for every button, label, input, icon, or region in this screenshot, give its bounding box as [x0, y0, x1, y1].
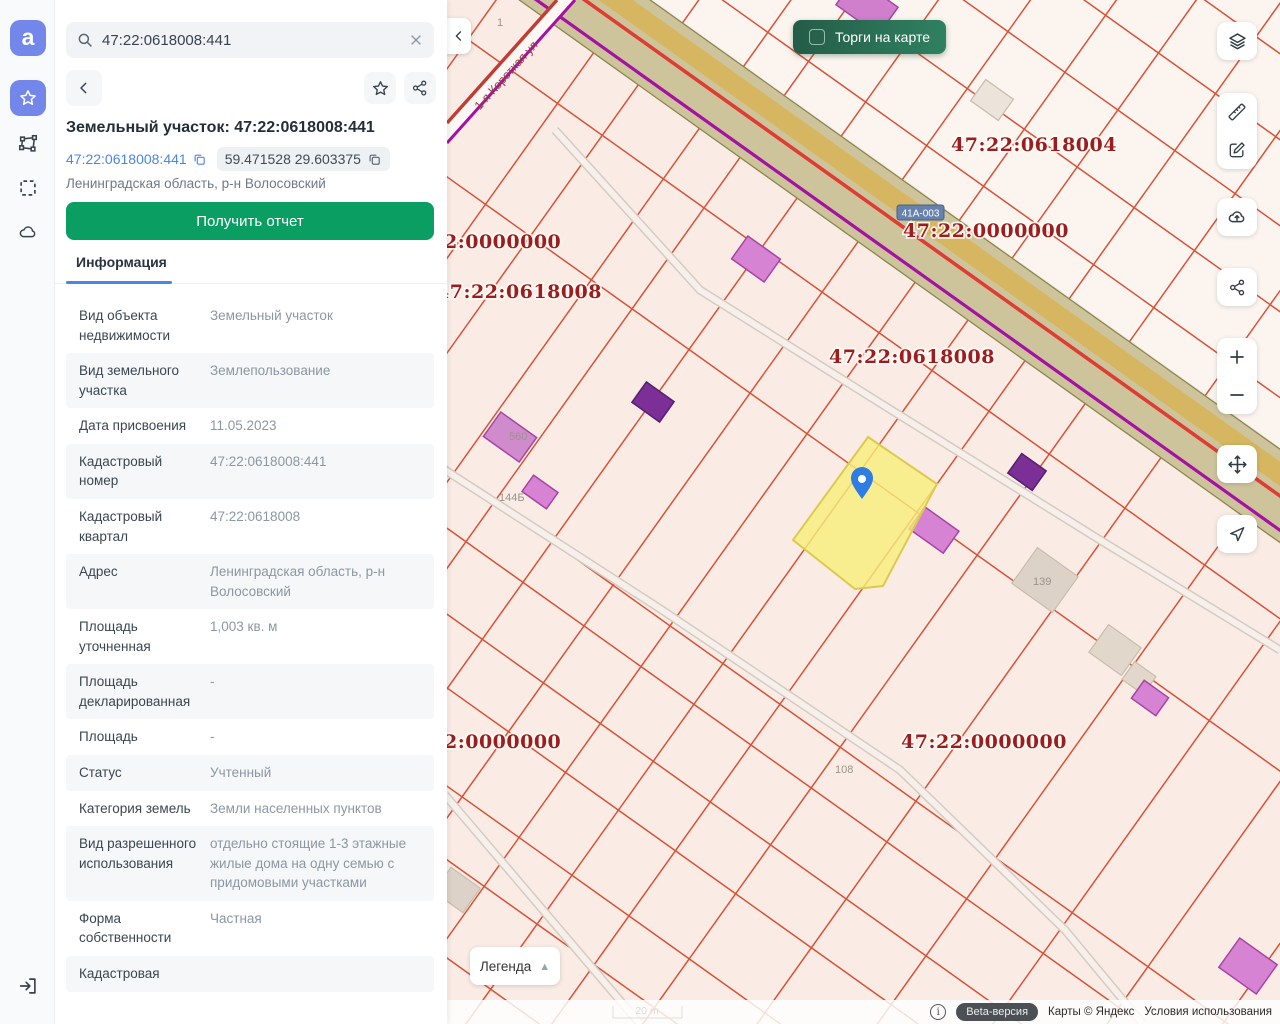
map-canvas[interactable]: 41А-003 47:22:0618004 47:22:0000000 2:00… [447, 0, 1280, 1024]
building-pink [522, 475, 558, 509]
sidebar-rail: a [0, 0, 55, 1024]
cloud-icon [17, 221, 39, 243]
row-value [210, 964, 421, 984]
upload-control [1217, 198, 1257, 236]
coordinates-chip[interactable]: 59.471528 29.603375 [217, 147, 390, 171]
legend-button[interactable]: Легенда ▲ [470, 947, 560, 985]
search-icon [76, 31, 94, 49]
row-label: Дата присвоения [79, 416, 210, 436]
tab-active-underline [66, 281, 172, 284]
maps-copyright[interactable]: Карты © Яндекс [1048, 1006, 1134, 1018]
row-label: Площадь декларированная [79, 672, 210, 711]
table-row: Вид разрешенного использованияотдельно с… [66, 826, 434, 901]
table-row: Вид объекта недвижимостиЗемельный участо… [66, 298, 434, 353]
row-label: Кадастровый номер [79, 452, 210, 491]
row-label: Кадастровый квартал [79, 507, 210, 546]
row-value: Учтенный [210, 763, 421, 783]
search-box [66, 22, 434, 58]
parcel-number-label: 139 [1033, 576, 1051, 588]
copy-icon[interactable] [367, 152, 382, 167]
copy-icon[interactable] [192, 152, 207, 167]
legend-label: Легенда [480, 959, 531, 974]
map-base-layer: 41А-003 47:22:0618004 47:22:0000000 2:00… [447, 0, 1280, 1024]
table-row: Площадь декларированная- [66, 664, 434, 719]
plus-icon [1228, 348, 1246, 366]
exit-icon [17, 975, 39, 997]
row-value: - [210, 672, 421, 711]
share-icon [411, 79, 429, 97]
get-report-button[interactable]: Получить отчет [66, 202, 434, 240]
table-row: СтатусУчтенный [66, 755, 434, 791]
table-row: Вид земельного участкаЗемлепользование [66, 353, 434, 408]
chevron-left-icon [452, 29, 466, 43]
identifier-row: 47:22:0618008:441 59.471528 29.603375 [66, 146, 436, 172]
kv-label: 47:22:0618008 [829, 346, 995, 368]
star-outline-icon [371, 79, 390, 98]
minus-icon [1228, 386, 1246, 404]
kv-label: 2:0000000 [447, 731, 561, 753]
search-input[interactable] [102, 32, 400, 49]
edit-icon [1227, 140, 1247, 160]
row-value: Ленинградская область, р-н Волосовский [210, 562, 421, 601]
row-label: Вид объекта недвижимости [79, 306, 210, 345]
my-location-button[interactable] [1217, 515, 1257, 553]
dashed-square-icon [17, 177, 39, 199]
chevron-up-icon: ▲ [539, 961, 550, 973]
table-row: Дата присвоения11.05.2023 [66, 408, 434, 444]
pan-button[interactable] [1217, 445, 1257, 483]
app-root: a [0, 0, 1280, 1024]
parcel-number-label: 144Б [499, 492, 525, 504]
zoom-control [1217, 338, 1257, 414]
beta-badge: Beta-версия [956, 1003, 1038, 1021]
table-row: Кадастровый номер47:22:0618008:441 [66, 444, 434, 499]
layers-icon [1227, 31, 1248, 52]
sidebar-item-favorites[interactable] [10, 80, 46, 116]
road-badge-text: 41А-003 [902, 209, 940, 220]
page-title: Земельный участок: 47:22:0618008:441 [66, 119, 436, 137]
share-control [1217, 268, 1257, 306]
edit-button[interactable] [1217, 131, 1257, 169]
move-icon [1227, 454, 1248, 475]
location-arrow-icon [1227, 524, 1247, 544]
favorite-button[interactable] [364, 72, 396, 104]
back-button[interactable] [66, 70, 102, 106]
ruler-button[interactable] [1217, 93, 1257, 131]
coordinates-text: 59.471528 29.603375 [225, 151, 361, 167]
info-icon[interactable]: i [930, 1004, 946, 1020]
sidebar-item-area-select[interactable] [10, 170, 46, 206]
sidebar-item-exit[interactable] [10, 968, 46, 1004]
zoom-in-button[interactable] [1217, 338, 1257, 376]
table-row: Площадь уточненная1,003 кв. м [66, 609, 434, 664]
cadastral-number-link[interactable]: 47:22:0618008:441 [66, 151, 207, 167]
row-label: Статус [79, 763, 210, 783]
building-gray [447, 867, 480, 912]
panel-actions [66, 70, 434, 106]
sidebar-item-cloud[interactable] [10, 214, 46, 250]
cloud-upload-button[interactable] [1217, 198, 1257, 236]
layers-control [1217, 22, 1257, 60]
zoom-out-button[interactable] [1217, 376, 1257, 414]
info-panel: Земельный участок: 47:22:0618008:441 47:… [55, 0, 447, 1024]
close-icon[interactable] [408, 32, 424, 48]
app-logo[interactable]: a [10, 20, 46, 56]
address-text: Ленинградская область, р-н Волосовский [66, 176, 436, 191]
row-value: Земельный участок [210, 306, 421, 345]
polygon-icon [17, 133, 39, 155]
pan-control [1217, 445, 1257, 483]
measure-edit-control [1217, 93, 1257, 169]
building-purple [632, 382, 674, 422]
locate-control [1217, 515, 1257, 553]
layers-button[interactable] [1217, 22, 1257, 60]
selected-parcel[interactable] [793, 437, 937, 589]
cadastral-number-text: 47:22:0618008:441 [66, 151, 187, 167]
road-badge: 41А-003 [897, 205, 944, 220]
parcel-number-label: 560 [509, 431, 527, 443]
tab-bar: Информация [55, 248, 447, 284]
parcel-number-label: 108 [835, 764, 853, 776]
row-value: 11.05.2023 [210, 416, 421, 436]
terms-link[interactable]: Условия использования [1144, 1006, 1272, 1018]
sidebar-item-polygon-tool[interactable] [10, 126, 46, 162]
row-label: Вид земельного участка [79, 361, 210, 400]
chevron-left-icon [76, 80, 92, 96]
tab-information[interactable]: Информация [66, 254, 177, 282]
row-value: 1,003 кв. м [210, 617, 421, 656]
row-label: Площадь уточненная [79, 617, 210, 656]
info-table: Вид объекта недвижимостиЗемельный участо… [66, 298, 434, 992]
table-row: Кадастровый квартал47:22:0618008 [66, 499, 434, 554]
row-value: - [210, 727, 421, 747]
kv-label: 47:22:0618004 [951, 134, 1117, 156]
torgi-label: Торги на карте [835, 29, 930, 45]
row-label: Категория земель [79, 799, 210, 819]
row-label: Площадь [79, 727, 210, 747]
row-label: Вид разрешенного использования [79, 834, 210, 893]
table-row: Площадь- [66, 719, 434, 755]
kv-label: 47:22:0000000 [901, 731, 1067, 753]
row-value: отдельно стоящие 1-3 этажные жилые дома … [210, 834, 421, 893]
torgi-checkbox[interactable] [809, 29, 825, 45]
kv-label: 47:22:0000000 [903, 220, 1069, 242]
row-value: Частная [210, 909, 421, 948]
row-label: Адрес [79, 562, 210, 601]
share-icon [1228, 278, 1247, 297]
row-value: 47:22:0618008:441 [210, 452, 421, 491]
panel-collapse-button[interactable] [447, 18, 471, 54]
cloud-upload-icon [1226, 206, 1248, 228]
building-pink [732, 236, 781, 282]
building-pink [1219, 938, 1277, 994]
kv-label: 47:22:0618008 [447, 281, 602, 303]
row-value: Землепользование [210, 361, 421, 400]
table-row: АдресЛенинградская область, р-н Волосовс… [66, 554, 434, 609]
table-row: Категория земельЗемли населенных пунктов [66, 791, 434, 827]
torgi-toggle-button[interactable]: Торги на карте [793, 20, 946, 54]
parcel-number-label: 1 [497, 17, 503, 29]
table-row: Форма собственностиЧастная [66, 901, 434, 956]
logo-icon: a [22, 26, 35, 49]
row-label: Кадастровая [79, 964, 210, 984]
row-value: Земли населенных пунктов [210, 799, 421, 819]
map-attribution: i Beta-версия Карты © Яндекс Условия исп… [930, 1000, 1272, 1024]
row-label: Форма собственности [79, 909, 210, 948]
map-share-button[interactable] [1217, 268, 1257, 306]
table-row: Кадастровая [66, 956, 434, 992]
star-icon [18, 88, 38, 108]
share-button[interactable] [404, 72, 436, 104]
row-value: 47:22:0618008 [210, 507, 421, 546]
ruler-icon [1227, 102, 1247, 122]
kv-label: 2:0000000 [447, 231, 561, 253]
